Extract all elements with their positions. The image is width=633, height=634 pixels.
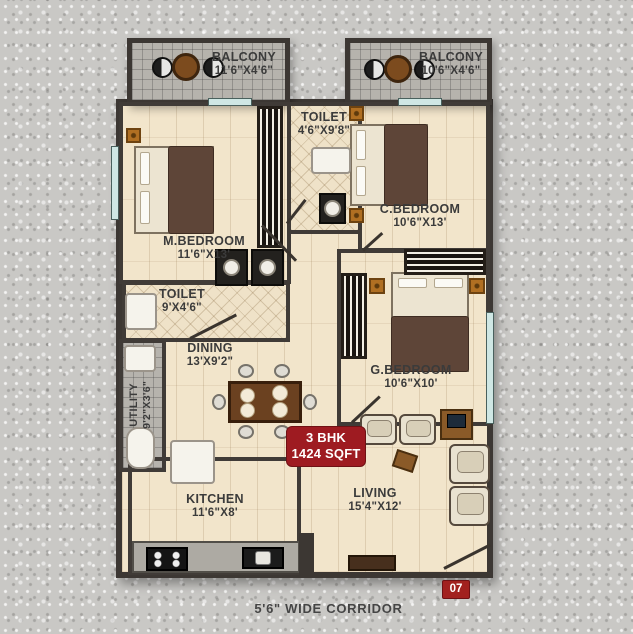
tv-cabinet-icon [348,555,396,571]
room-dims: 15'4"X12' [314,501,436,515]
dining-chair-icon [303,394,317,410]
room-label-toilet-top: TOILET 4'6"X9'8" [289,110,359,139]
room-name: UTILITY [128,360,141,450]
floorplan-page: { "plan": { "rooms": [ {"id":"balcony-le… [0,0,633,634]
room-name: TOILET [134,287,230,302]
room-label-living: LIVING 15'4"X12' [314,486,436,515]
pillow-icon [356,166,366,196]
window-marker-g-bedroom [486,312,494,424]
dining-chair-icon [274,364,290,378]
unit-type: 3 BHK [291,430,361,446]
sink-icon [242,547,284,569]
plate-icon [272,402,288,418]
room-dims: 9'2"X3'6" [141,360,154,450]
tv-icon [447,414,466,428]
pillow-icon [140,191,150,224]
blanket-icon [168,146,214,234]
unit-area: 1424 SQFT [291,446,361,462]
room-dims: 11'6"X8' [155,507,275,521]
balcony-door-right [398,98,442,106]
room-dims: 13'X9'2" [152,356,268,370]
room-label-m-bedroom: M.BEDROOM 11'6"X13' [144,234,264,263]
room-dims: 11'6"X13' [144,249,264,263]
room-name: M.BEDROOM [144,234,264,249]
nightstand-icon [126,128,141,143]
room-dims: 10'6"X4'6" [408,65,494,79]
balcony-door-left [208,98,252,106]
stove-icon [146,547,188,571]
plate-icon [240,388,255,403]
shower-tray-icon [311,147,351,174]
plate-icon [240,403,255,418]
pillow-icon [140,152,150,185]
room-name: LIVING [314,486,436,501]
pillow-icon [434,278,463,288]
room-dims: 11'6"X4'6" [198,65,290,79]
room-label-balcony-left: BALCONY 11'6"X4'6" [198,50,290,79]
flat-number-badge: 07 [442,580,470,599]
room-label-dining: DINING 13'X9'2" [152,341,268,370]
balcony-chair-icon [152,57,173,78]
room-label-toilet-mid: TOILET 9'X4'6" [134,287,230,316]
window-marker-m-bedroom [111,146,119,220]
dining-table-icon [228,381,302,423]
room-dims: 4'6"X9'8" [289,125,359,139]
room-name: BALCONY [198,50,290,65]
room-label-balcony-right: BALCONY 10'6"X4'6" [408,50,494,79]
armchair-icon [449,444,490,484]
room-name: C.BEDROOM [360,202,480,217]
room-name: KITCHEN [155,492,275,507]
room-label-c-bedroom: C.BEDROOM 10'6"X13' [360,202,480,231]
nightstand-icon [369,278,385,294]
room-name: TOILET [289,110,359,125]
room-label-g-bedroom: G.BEDROOM 10'6"X10' [351,363,471,392]
room-dims: 10'6"X13' [360,217,480,231]
dining-chair-icon [212,394,226,410]
armchair-icon [449,486,490,526]
balcony-table-icon [172,53,200,81]
room-dims: 10'6"X10' [351,378,471,392]
room-name: DINING [152,341,268,356]
fridge-icon [170,440,215,484]
wardrobe-icon-g-bedroom [341,273,367,359]
room-dims: 9'X4'6" [134,302,230,316]
pillow-icon [398,278,427,288]
sofa-icon [399,414,436,445]
wall-stub [299,533,314,575]
wardrobe-icon-c-bedroom [404,249,486,275]
room-label-kitchen: KITCHEN 11'6"X8' [155,492,275,521]
dining-chair-icon [238,425,254,439]
plate-icon [272,385,288,401]
balcony-chair-icon [364,59,385,80]
room-name: BALCONY [408,50,494,65]
wc-icon-toilet-top [319,193,346,224]
room-name: G.BEDROOM [351,363,471,378]
room-label-utility: UTILITY 9'2"X3'6" [128,360,154,450]
nightstand-icon [469,278,485,294]
unit-type-badge: 3 BHK 1424 SQFT [286,426,366,467]
corridor-label: 5'6" WIDE CORRIDOR [140,601,517,616]
blanket-icon [384,124,428,206]
